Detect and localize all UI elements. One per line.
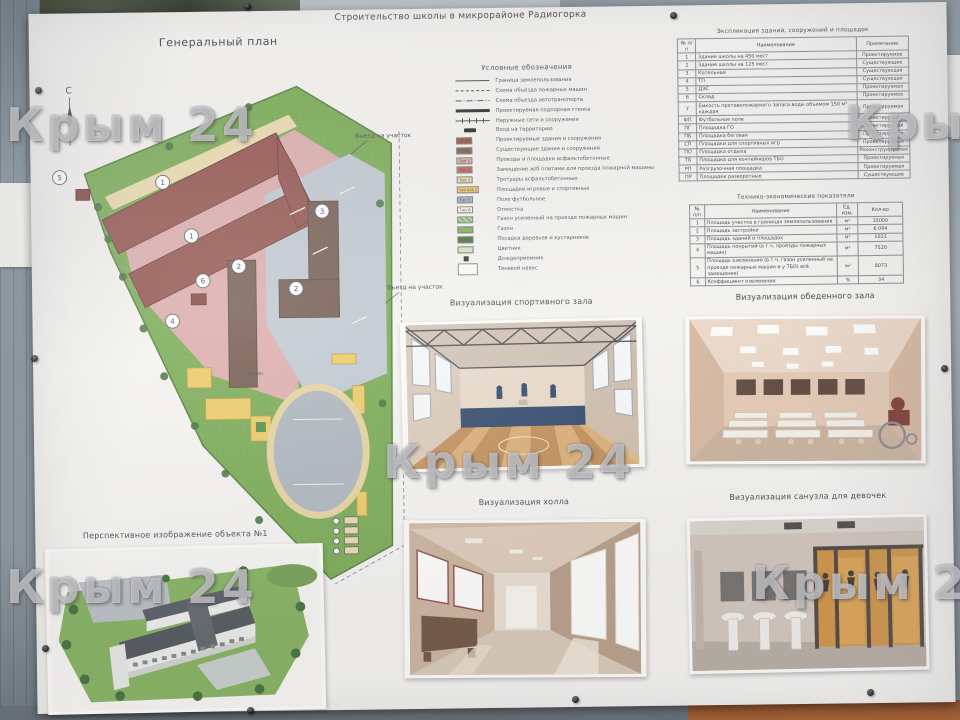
legend-swatch-box: Тип 1 (454, 156, 496, 164)
legend-label: Вход на территорию (496, 127, 553, 134)
table-cell: Площадки разворотные (697, 171, 857, 181)
legend-swatch-box (456, 245, 498, 253)
legend-swatch-thick (454, 109, 496, 112)
table-cell: 6 (690, 278, 705, 286)
table-cell: 1 (690, 219, 705, 227)
push-pin (572, 696, 579, 703)
marker-number: 6 (201, 277, 206, 285)
marker-number: 4 (170, 318, 175, 326)
photo-scene: Строительство школы в микрорайоне Радиог… (0, 0, 960, 720)
legend-swatch-entry (454, 128, 496, 133)
table-cell: ФП (678, 116, 696, 124)
legend-label: Проектируемая подпорная стенка (496, 106, 591, 113)
column-header: Примечание (856, 36, 909, 51)
channel-watermark: Крым 24 (6, 560, 257, 614)
table-row: 6Коэффициент озеленения%34 (690, 275, 903, 286)
stadium-line-2 (294, 484, 344, 485)
table-cell: % (837, 276, 858, 284)
push-pin (31, 355, 38, 362)
caption-sport-hall: Визуализация спортивного зала (400, 296, 642, 308)
poster-title: Строительство школы в микрорайоне Радиог… (290, 9, 630, 23)
push-pin (244, 3, 251, 10)
marker-number: 2 (236, 263, 241, 271)
legend-swatch-box: Тип 3 (455, 176, 497, 184)
service-structure (191, 294, 206, 305)
tep-table: Технико-экономические показатели № п/пНа… (689, 193, 904, 287)
legend-label: Газон усиленный на проезде пожарных маши… (497, 215, 627, 223)
marker-number: 1 (189, 232, 194, 240)
legend-label: Теневой навес (498, 265, 538, 272)
table-cell: м² (837, 241, 858, 256)
legend-swatch-box: Тип 4/4.1 (455, 186, 497, 194)
push-pin (35, 87, 42, 94)
legend-swatch-hatch (455, 216, 497, 224)
legend-label: Существующие здания и сооружения (496, 146, 600, 153)
hall-render (404, 519, 647, 678)
legend-swatch-tick (454, 118, 496, 124)
table-cell: ПБ (679, 132, 697, 140)
column-header: Ед. изм. (836, 203, 857, 218)
compass-letter: С (65, 86, 71, 96)
table-cell: м² (837, 225, 858, 233)
table-cell: 34 (859, 275, 904, 284)
legend-label: Граница землепользования (495, 77, 571, 84)
legend-label: Замощение ж/б плитами для проезда пожарн… (496, 165, 654, 173)
entry-label: Въезд на участок (387, 284, 443, 292)
legend-label: Посадка деревьев и кустарников (497, 235, 589, 242)
legend-label: Проезды и площадки асфальтобетонные (496, 156, 609, 163)
playground-green-inset (256, 422, 266, 432)
table-cell: м² (837, 233, 858, 241)
legend-rows: Граница землепользованияСхема объезда по… (453, 74, 678, 275)
column-header: № п/п (677, 39, 696, 53)
table-cell: Коэффициент озеленения (705, 276, 837, 286)
explication-title: Экспликация зданий, сооружений и площадо… (677, 27, 909, 36)
channel-watermark: Крым 24 (845, 96, 960, 150)
table-row: ПРПлощадки разворотныеСуществующие (679, 170, 910, 181)
table-cell: Существующие (858, 170, 911, 179)
legend-label: Тротуары асфальтобетонные (497, 176, 578, 183)
exit-label: Выезд на участок (355, 132, 412, 140)
caption-hall: Визуализация холла (403, 496, 645, 508)
legend-swatch-box (455, 236, 497, 244)
table-cell: 6 (678, 94, 696, 102)
legend-label: Схема объезда автотранспорта (496, 97, 583, 104)
elevation-label-2: 95.100 (248, 371, 263, 376)
push-pin (247, 707, 254, 714)
legend-swatch-box (454, 147, 496, 155)
table-cell: 2 (678, 61, 696, 69)
legend-swatch-box (454, 137, 496, 145)
table-cell: 3 (690, 235, 705, 243)
marker-number: 2 (294, 285, 299, 293)
table-cell: 7 (678, 102, 697, 116)
tp-structure (76, 189, 90, 200)
table-cell: ПР (679, 173, 697, 181)
legend: Условные обозначения Граница землепользо… (453, 62, 678, 275)
table-cell: ПО (679, 149, 697, 157)
table-cell: 5 (678, 86, 696, 94)
column-header: № п/п (690, 205, 705, 219)
table-cell: 4 (678, 77, 696, 85)
stadium-track (269, 387, 367, 516)
legend-swatch-shed (456, 263, 498, 276)
push-pin (670, 12, 677, 19)
table-cell: СП (679, 140, 697, 148)
push-pin (867, 689, 874, 696)
table-cell: ТБ (679, 157, 697, 165)
table-cell: м² (837, 217, 858, 225)
table-cell: РП (679, 165, 697, 173)
tep-title: Технико-экономические показатели (689, 193, 903, 202)
elevation-label-1: 95.100 (299, 278, 314, 283)
table-cell: ПГ (678, 124, 696, 132)
legend-swatch-box: Тип 2 (454, 166, 496, 174)
legend-heading: Условные обозначения (481, 62, 675, 73)
existing-building-3-wing (279, 279, 339, 318)
push-pin (941, 365, 948, 372)
table-cell: м² (837, 256, 859, 277)
legend-label: Схема объезда пожарных машин (495, 87, 587, 94)
marker-number: 5 (57, 174, 62, 182)
legend-label: Площадки игровые и спортивные (497, 185, 590, 192)
legend-swatch-line (453, 80, 495, 82)
legend-label: Цветник (498, 246, 521, 252)
caption-dining-hall: Визуализация обеденного зала (684, 290, 926, 302)
legend-swatch-box: Тип 6 (455, 206, 497, 214)
table-cell: 1 (678, 53, 696, 61)
legend-item: Теневой навес (456, 261, 678, 274)
column-header: Кол-во (858, 202, 903, 217)
genplan-heading: Генеральный план (159, 35, 278, 50)
table-cell: Площадь озеленения (в т.ч. газон усиленн… (705, 256, 837, 278)
white-panel-left (0, 183, 34, 267)
table-cell: 7520 (858, 241, 903, 256)
channel-watermark: Крым 24 (752, 556, 960, 610)
legend-swatch-box (455, 226, 497, 234)
table-cell: 2 (690, 227, 705, 235)
table-row: 5Площадь озеленения (в т.ч. газон усилен… (690, 255, 903, 278)
table-cell: 4 (690, 243, 705, 257)
marker-number: 1 (160, 179, 165, 187)
legend-swatch-box: Тип 5 (455, 196, 497, 204)
dining-hall-render (685, 315, 926, 464)
existing-building-2 (228, 260, 258, 387)
legend-label: Наружные сети и сооружения (496, 116, 579, 123)
table-cell: 8073 (858, 255, 903, 276)
channel-watermark: Крым 24 (6, 98, 257, 152)
push-pin (42, 645, 49, 652)
marker-number: 3 (320, 208, 325, 216)
table-cell: 3 (678, 69, 696, 77)
legend-label: Проектируемые здания и сооружения (496, 136, 601, 143)
legend-label: Отмостка (497, 206, 523, 212)
caption-girls-bathroom: Визуализация санузла для девочек (687, 490, 929, 502)
legend-label: Дождеприемник (498, 255, 544, 262)
legend-swatch-dashdot (454, 100, 496, 102)
table-cell: 5 (690, 258, 705, 279)
legend-label: Поле футбольное (497, 196, 545, 203)
stadium-line (293, 419, 343, 420)
legend-swatch-dash (453, 90, 495, 92)
channel-watermark: Крым 24 (383, 435, 634, 489)
legend-label: Газон (497, 226, 513, 232)
legend-swatch-dot (456, 256, 498, 262)
